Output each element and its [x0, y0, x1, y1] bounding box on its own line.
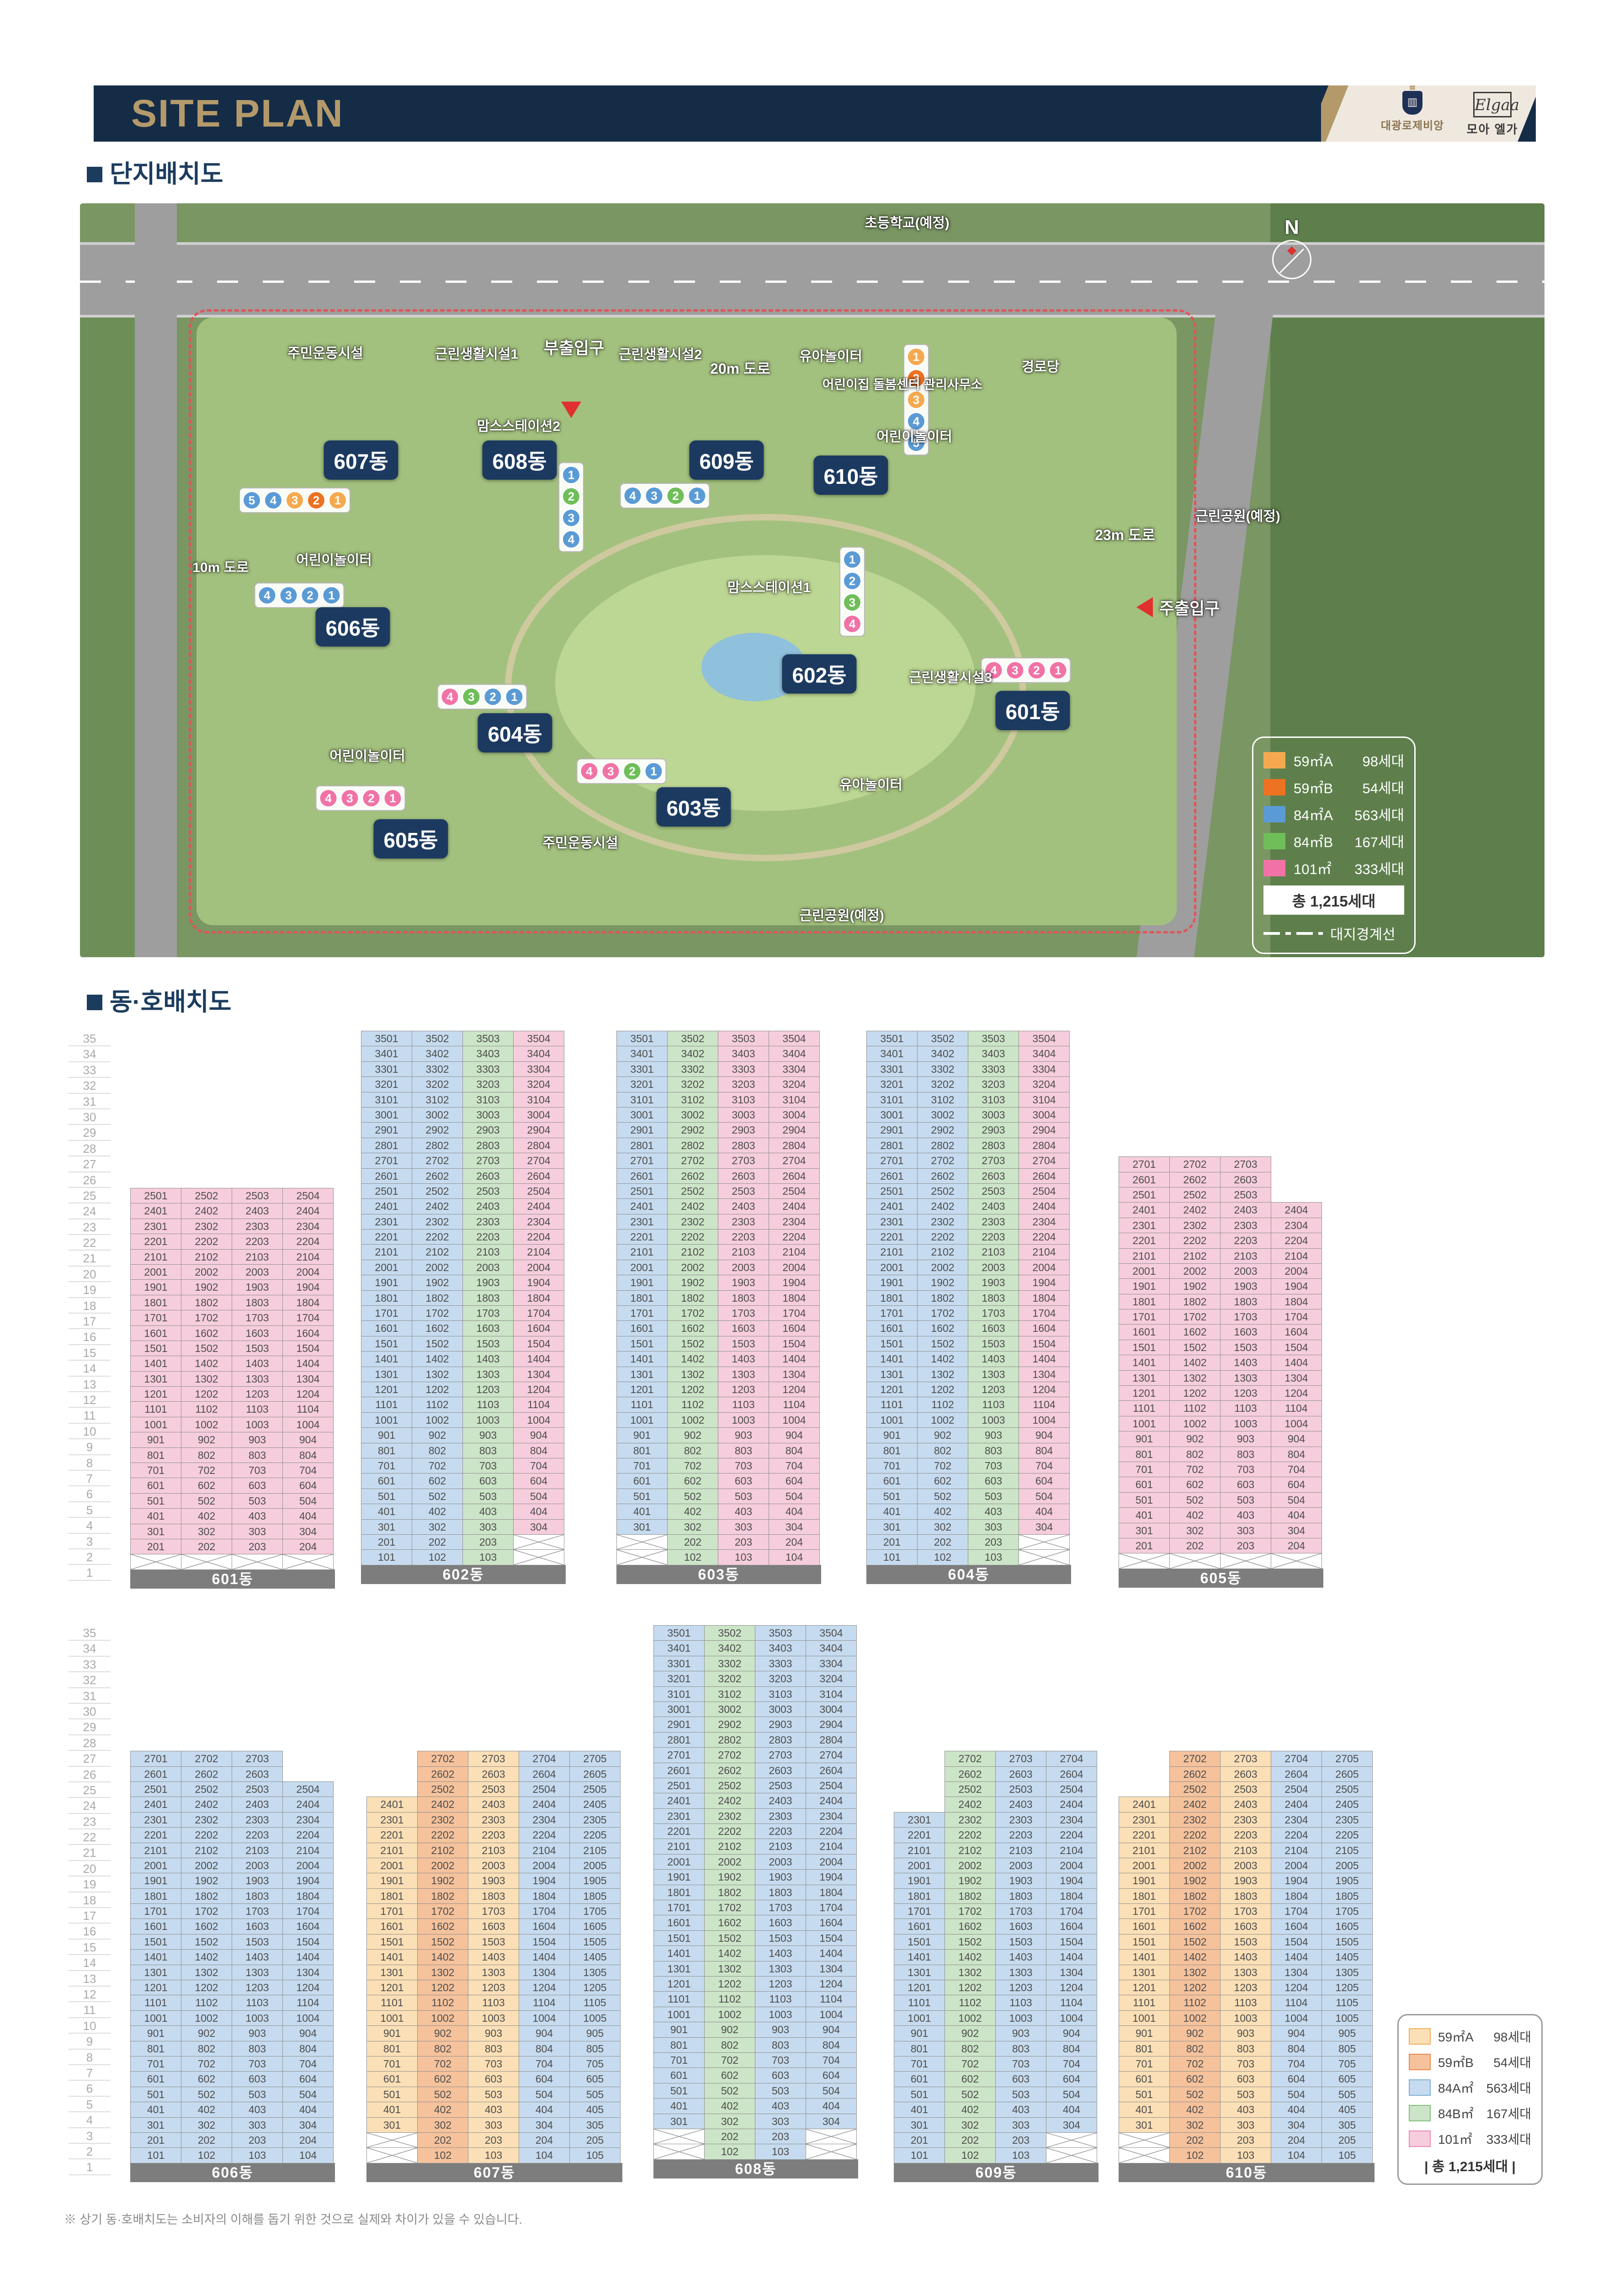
unit-cell: 1404	[282, 1356, 334, 1371]
unit-cell: 103	[995, 2147, 1046, 2163]
legend-total: | 총 1,215세대 |	[1409, 2155, 1531, 2175]
unit-cell: 2503	[232, 1781, 283, 1797]
unit-cell: 402	[181, 1508, 232, 1524]
building-grid-601: 2501250225032504240124022403240423012302…	[130, 1188, 335, 1589]
grid-floor-row: 3401340234033404	[616, 1046, 821, 1061]
building-wing-circle: 4	[562, 530, 581, 549]
unit-cell: 1805	[569, 1888, 621, 1904]
grid-floor-row: 801802803804	[653, 2037, 858, 2052]
grid-floor-row: 401402403404	[130, 2102, 335, 2117]
unit-cell: 1801	[1119, 1294, 1170, 1309]
unit-cell: 2505	[1321, 1781, 1373, 1797]
grid-floor-row: 1701170217031704	[894, 1903, 1099, 1919]
hatched-cell	[282, 1554, 334, 1569]
unit-cell: 2303	[468, 1812, 519, 1828]
unit-cell: 1604	[806, 1915, 857, 1930]
building-wing-circle: 2	[843, 572, 862, 591]
unit-cell: 1304	[1046, 1965, 1097, 1980]
unit-cell: 3502	[917, 1031, 968, 1046]
unit-cell: 3501	[616, 1031, 668, 1046]
grid-floor-row: 1701170217031704	[1119, 1309, 1323, 1324]
unit-cell: 903	[232, 2025, 283, 2041]
unit-cell: 2401	[1119, 1797, 1170, 1812]
grid-floor-row: 501502503504	[130, 1493, 335, 1508]
unit-cell: 1502	[945, 1934, 996, 1950]
unit-cell: 2803	[755, 1732, 806, 1748]
unit-cell: 2402	[417, 1797, 468, 1812]
unit-cell: 2101	[361, 1244, 412, 1260]
unit-cell: 2703	[995, 1751, 1046, 1766]
grid-floor-row: 1201120212031204	[1119, 1385, 1323, 1400]
floor-axis-label: 24	[69, 1203, 111, 1219]
grid-floor-row: 1801180218031804	[616, 1290, 821, 1305]
unit-cell: 904	[769, 1427, 820, 1443]
unit-cell: 703	[468, 2056, 519, 2072]
map-legend: 59㎡A98세대59㎡B54세대84㎡A563세대84㎡B167세대101㎡33…	[1252, 737, 1416, 954]
legend-count: 167세대	[1354, 831, 1404, 851]
unit-cell: 503	[232, 1493, 283, 1509]
unit-cell: 2002	[917, 1260, 968, 1275]
unit-cell: 2305	[569, 1812, 621, 1828]
unit-cell: 2702	[667, 1153, 718, 1168]
unit-cell: 1201	[1119, 1980, 1170, 1995]
unit-cell: 1004	[769, 1412, 820, 1428]
unit-cell: 702	[667, 1458, 718, 1473]
unit-cell: 1903	[968, 1275, 1019, 1290]
building-wing-circle: 2	[301, 586, 320, 605]
unit-cell: 401	[866, 1504, 918, 1519]
unit-cell: 502	[704, 2083, 755, 2099]
unit-cell: 1904	[806, 1869, 857, 1885]
unit-cell: 1503	[1220, 1934, 1271, 1950]
unit-cell: 201	[361, 1534, 412, 1550]
grid-floor-row: 1401140214031404	[616, 1351, 821, 1366]
unit-cell: 903	[755, 2022, 806, 2037]
unit-cell: 504	[806, 2083, 857, 2099]
grid-floor-row: 1901190219031904	[130, 1873, 335, 1888]
floor-axis-label: 5	[69, 1502, 111, 1518]
unit-cell: 903	[462, 1427, 514, 1443]
unit-cell: 1805	[1321, 1888, 1373, 1904]
unit-cell: 3101	[866, 1092, 918, 1108]
grid-floor-row: 2201220222032204	[653, 1823, 858, 1839]
unit-cell: 1403	[718, 1351, 769, 1367]
unit-cell: 502	[917, 1489, 968, 1504]
unit-cell: 2103	[462, 1244, 514, 1260]
unit-cell: 1301	[130, 1371, 181, 1387]
unit-cell: 1004	[1046, 2010, 1097, 2026]
unit-cell: 803	[232, 2041, 283, 2056]
unit-cell: 2403	[1220, 1797, 1271, 1812]
unit-cell: 3201	[616, 1076, 668, 1092]
unit-cell: 504	[1019, 1489, 1070, 1504]
unit-cell: 2102	[1169, 1843, 1221, 1858]
grid-floor-row: 18011802180318041805	[366, 1888, 622, 1903]
floor-axis-label: 7	[69, 2065, 111, 2081]
unit-cell: 3101	[653, 1686, 705, 1702]
floor-axis-label: 24	[69, 1798, 111, 1813]
unit-cell: 2603	[468, 1766, 519, 1782]
unit-cell: 2502	[667, 1183, 718, 1199]
unit-cell: 1302	[945, 1965, 996, 1980]
boundary-dash-icon	[1263, 932, 1323, 935]
unit-cell: 1701	[866, 1305, 918, 1321]
floor-axis-label: 10	[69, 1424, 111, 1439]
unit-cell: 1402	[1169, 1949, 1221, 1965]
unit-cell: 2302	[181, 1812, 232, 1828]
unit-cell: 103	[718, 1549, 769, 1565]
unit-cell: 1403	[1220, 1949, 1271, 1965]
legend-swatch-icon	[1409, 2079, 1431, 2096]
floor-axis-label: 1	[69, 2159, 111, 2175]
grid-floor-row: 3501350235033504	[616, 1031, 821, 1046]
unit-cell: 3202	[917, 1076, 968, 1092]
grid-floor-row: 1801180218031804	[361, 1290, 566, 1305]
unit-cell: 1401	[894, 1949, 945, 1965]
grid-floor-row: 2101210221032104	[361, 1244, 566, 1259]
unit-cell: 701	[1119, 1462, 1170, 1477]
unit-cell: 1104	[1019, 1397, 1070, 1412]
unit-cell: 1703	[995, 1903, 1046, 1919]
grid-floor-row: 501502503504	[653, 2083, 858, 2098]
unit-cell: 1004	[513, 1412, 564, 1428]
unit-cell: 804	[519, 2041, 570, 2056]
unit-cell: 103	[468, 2147, 519, 2163]
unit-cell: 804	[282, 2041, 334, 2056]
unit-cell: 1902	[917, 1275, 968, 1290]
unit-cell: 2405	[1321, 1797, 1373, 1812]
unit-cell: 601	[1119, 1477, 1170, 1492]
grid-floor-row: 1601160216031604	[616, 1320, 821, 1336]
unit-cell: 1302	[417, 1965, 468, 1980]
building-wing-circle: 2	[666, 486, 685, 505]
unit-cell: 1103	[755, 1991, 806, 2007]
unit-cell: 1803	[1220, 1888, 1271, 1904]
header-brand-area: 대광로제비앙 Elgaa 모아 엘가	[1321, 85, 1536, 142]
grid-floor-row: 1601160216031604	[1119, 1324, 1323, 1339]
unit-cell: 2002	[181, 1264, 232, 1280]
unit-cell: 102	[704, 2144, 755, 2159]
unit-cell: 201	[130, 2132, 181, 2148]
unit-cell: 2603	[462, 1168, 514, 1184]
grid-floor-row: 401402403404	[894, 2102, 1099, 2117]
unit-cell: 1901	[130, 1279, 181, 1295]
unit-cell: 1801	[894, 1888, 945, 1904]
grid-floor-row: 1401140214031404	[130, 1356, 335, 1371]
grid-floor-row: 2601260226032604	[616, 1168, 821, 1183]
unit-cell: 2501	[653, 1778, 705, 1793]
floor-axis-label: 35	[69, 1031, 111, 1046]
unit-cell: 1401	[1119, 1949, 1170, 1965]
unit-cell: 603	[468, 2071, 519, 2087]
unit-cell: 1602	[945, 1919, 996, 1934]
unit-cell: 1004	[282, 2010, 334, 2026]
grid-floor-row: 2401240224032404	[130, 1797, 335, 1812]
unit-cell: 1503	[232, 1341, 283, 1356]
grid-floor-row: 501502503504	[130, 2087, 335, 2102]
grid-floor-row: 501502503504	[1119, 1492, 1323, 1507]
unit-cell: 2704	[519, 1751, 570, 1766]
unit-cell: 303	[1220, 2117, 1271, 2133]
unit-cell: 1502	[181, 1341, 232, 1356]
unit-cell: 604	[513, 1473, 564, 1489]
unit-cell: 2403	[968, 1198, 1019, 1214]
unit-cell: 1301	[653, 1961, 705, 1977]
grid-floor-row: 1801180218031804	[130, 1888, 335, 1903]
unit-cell: 1101	[366, 1995, 418, 2010]
floor-axis-label: 26	[69, 1172, 111, 1188]
unit-cell: 3204	[1019, 1076, 1070, 1092]
unit-cell: 904	[513, 1427, 564, 1443]
unit-cell: 3404	[1019, 1046, 1070, 1061]
unit-cell: 402	[917, 1504, 968, 1519]
building-wing-circle: 3	[562, 509, 581, 528]
unit-cell: 602	[704, 2067, 755, 2083]
unit-cell: 2501	[866, 1183, 918, 1199]
unit-cell: 305	[569, 2117, 621, 2133]
grid-floor-row: 901902903904	[361, 1427, 566, 1442]
grid-floor-row: 2001200220032004	[130, 1264, 335, 1279]
unit-cell: 2605	[569, 1766, 621, 1782]
legend-boundary: 대지경계선	[1263, 923, 1404, 943]
unit-cell: 1502	[412, 1336, 463, 1351]
unit-cell: 2301	[616, 1214, 668, 1230]
unit-cell: 2903	[755, 1717, 806, 1732]
grid-floor-row: 2701270227032704	[653, 1747, 858, 1762]
unit-cell: 103	[1220, 2147, 1271, 2163]
unit-cell: 1103	[1220, 1400, 1271, 1416]
building-wing-circle: 1	[907, 347, 926, 366]
unit-cell: 503	[462, 1489, 514, 1504]
unit-cell: 1202	[667, 1382, 718, 1397]
unit-cell: 2901	[866, 1122, 918, 1138]
grid-floor-row: 2101210221032104	[616, 1244, 821, 1259]
building-wing-circle: 3	[340, 789, 360, 808]
map-building-wings: 1234	[839, 547, 865, 637]
grid-floor-row: 1901190219031904	[616, 1275, 821, 1290]
unit-cell: 402	[181, 2102, 232, 2117]
unit-cell: 2502	[945, 1781, 996, 1797]
unit-cell: 3103	[755, 1686, 806, 1702]
unit-cell: 1703	[468, 1903, 519, 1919]
unit-cell: 2004	[282, 1858, 334, 1873]
unit-cell: 1202	[1169, 1980, 1221, 1995]
unit-cell: 1901	[361, 1275, 412, 1290]
unit-cell: 1702	[1169, 1903, 1221, 1919]
grid-floor-row: 701702703704	[894, 2056, 1099, 2071]
unit-cell: 3401	[866, 1046, 918, 1061]
unit-cell: 2303	[995, 1812, 1046, 1828]
unit-cell: 3502	[412, 1031, 463, 1046]
unit-cell: 1601	[1119, 1919, 1170, 1934]
unit-cell: 2002	[1169, 1263, 1221, 1279]
building-grid-602: 3501350235033504340134023403340433013302…	[361, 1031, 566, 1584]
unit-cell: 203	[232, 2132, 283, 2148]
unit-cell: 1902	[412, 1275, 463, 1290]
unit-cell: 704	[806, 2052, 857, 2068]
unit-cell: 701	[361, 1458, 412, 1473]
floor-axis-label: 25	[69, 1188, 111, 1203]
unit-cell: 1901	[130, 1873, 181, 1888]
unit-cell: 101	[361, 1549, 412, 1565]
unit-cell: 1304	[282, 1965, 334, 1980]
unit-cell: 1305	[569, 1965, 621, 1980]
unit-cell: 603	[755, 2067, 806, 2083]
building-name-bar: 601동	[130, 1569, 335, 1589]
map-building-badge: 604동	[478, 713, 552, 753]
unit-cell: 2104	[806, 1839, 857, 1854]
unit-cell: 502	[1169, 2087, 1221, 2102]
unit-cell: 3501	[866, 1031, 918, 1046]
grid-floor-row: 2201220222032204	[130, 1827, 335, 1842]
floor-axis-label: 1	[69, 1565, 111, 1580]
unit-cell: 301	[130, 2117, 181, 2133]
building-wing-circle: 1	[383, 789, 403, 808]
unit-cell: 2703	[232, 1751, 283, 1766]
grid-floor-row: 19011902190319041905	[1119, 1873, 1375, 1888]
unit-cell: 2401	[366, 1797, 418, 1812]
unit-cell: 1205	[569, 1980, 621, 1995]
unit-cell: 101	[894, 2147, 945, 2163]
floor-axis-label: 33	[69, 1062, 111, 1078]
grid-floor-row: 202203	[653, 2129, 858, 2144]
unit-cell: 1403	[968, 1351, 1019, 1367]
floor-axis-label: 14	[69, 1955, 111, 1971]
unit-cell: 2804	[769, 1138, 820, 1153]
unit-cell: 1404	[769, 1351, 820, 1367]
building-wing-circle: 4	[580, 762, 599, 781]
unit-cell: 303	[718, 1519, 769, 1535]
grid-floor-row: 1601160216031604	[894, 1919, 1099, 1934]
unit-cell: 1903	[755, 1869, 806, 1885]
unit-cell: 1904	[519, 1873, 570, 1888]
header-band: SITE PLAN 대광로제비앙 Elgaa 모아 엘가	[94, 85, 1536, 142]
building-wing-circle: 2	[562, 487, 581, 506]
unit-cell: 2101	[866, 1244, 918, 1260]
unit-cell: 1601	[366, 1919, 418, 1934]
unit-cell: 1202	[1169, 1385, 1221, 1401]
unit-cell: 1701	[130, 1903, 181, 1919]
map-facility-label: 경로당	[1022, 355, 1060, 376]
unit-cell: 3402	[667, 1046, 718, 1061]
unit-cell: 201	[1119, 1538, 1170, 1553]
unit-cell: 1103	[232, 1401, 283, 1417]
unit-cell: 2704	[1271, 1751, 1322, 1766]
unit-cell: 2103	[995, 1843, 1046, 1858]
unit-cell: 2203	[968, 1229, 1019, 1245]
building-wing-circle: 1	[1049, 661, 1068, 680]
unit-cell: 2604	[513, 1168, 564, 1184]
floor-axis-label: 27	[69, 1751, 111, 1766]
unit-cell: 2702	[945, 1751, 996, 1766]
unit-cell: 2004	[1271, 1263, 1322, 1279]
unit-cell: 1801	[366, 1888, 418, 1904]
unit-cell: 404	[1046, 2102, 1097, 2117]
grid-floor-row: 3101310231033104	[866, 1092, 1071, 1107]
unit-cell: 602	[412, 1473, 463, 1489]
grid-floor-row	[1119, 1553, 1323, 1568]
unit-cell: 602	[667, 1473, 718, 1489]
grid-floor-row: 1501150215031504	[130, 1341, 335, 1356]
unit-cell: 304	[513, 1519, 564, 1535]
grid-floor-row: 2501250225032504	[866, 1183, 1071, 1198]
unit-cell: 1201	[366, 1980, 418, 1995]
unit-cell: 804	[1046, 2041, 1097, 2056]
unit-cell: 1804	[769, 1290, 820, 1306]
legend-swatch-icon	[1409, 2105, 1431, 2121]
grid-floor-row: 2901290229032904	[866, 1122, 1071, 1137]
unit-cell: 1301	[1119, 1370, 1170, 1386]
unit-cell: 2004	[513, 1260, 564, 1275]
unit-cell: 2401	[1119, 1202, 1170, 1218]
unit-cell: 1402	[1169, 1355, 1221, 1370]
unit-cell: 2401	[616, 1198, 668, 1214]
unit-cell: 1503	[1220, 1340, 1271, 1355]
unit-cell: 704	[1271, 1462, 1322, 1477]
unit-cell: 2303	[232, 1219, 283, 1234]
unit-cell: 2502	[412, 1183, 463, 1199]
grid-floor-row: 21012102210321042105	[366, 1843, 622, 1858]
unit-cell: 1003	[1220, 2010, 1271, 2026]
grid-floor-row: 1701170217031704	[866, 1305, 1071, 1320]
unit-cell: 2304	[1271, 1812, 1322, 1828]
unit-cell: 3502	[667, 1031, 718, 1046]
floor-axis-label: 2	[69, 2144, 111, 2159]
unit-cell: 2205	[569, 1827, 621, 1843]
unit-cell: 1503	[968, 1336, 1019, 1351]
grid-floor-row: 401402403404	[616, 1504, 821, 1519]
unit-cell: 1005	[1321, 2010, 1373, 2026]
grid-floor-row: 3101310231033104	[653, 1686, 858, 1701]
unit-cell: 901	[1119, 2025, 1170, 2041]
unit-cell: 2003	[468, 1858, 519, 1873]
unit-cell: 1804	[1271, 1888, 1322, 1904]
unit-cell: 3201	[866, 1076, 918, 1092]
grid-floor-row: 102103104105	[1119, 2147, 1375, 2162]
unit-cell: 1902	[181, 1279, 232, 1295]
unit-cell: 701	[1119, 2056, 1170, 2072]
unit-cell: 2501	[1119, 1187, 1170, 1203]
floor-axis-label: 6	[69, 2081, 111, 2096]
unit-cell: 1702	[667, 1305, 718, 1321]
unit-cell: 2004	[769, 1260, 820, 1275]
unit-cell: 703	[718, 1458, 769, 1473]
unit-cell: 2104	[513, 1244, 564, 1260]
unit-cell: 901	[866, 1427, 918, 1443]
unit-cell: 2802	[704, 1732, 755, 1748]
unit-cell: 3403	[718, 1046, 769, 1061]
unit-cell: 302	[1169, 1523, 1221, 1538]
grid-floor-row: 10011002100310041005	[1119, 2010, 1375, 2025]
unit-cell: 1003	[1220, 1416, 1271, 1431]
unit-cell: 401	[653, 2098, 705, 2114]
unit-cell: 1204	[519, 1980, 570, 1995]
hatched-cell	[1046, 2147, 1097, 2163]
unit-cell: 2902	[412, 1122, 463, 1138]
unit-cell: 2003	[1220, 1858, 1271, 1873]
unit-cell: 2201	[894, 1827, 945, 1843]
unit-cell: 702	[181, 2056, 232, 2072]
unit-cell: 802	[412, 1443, 463, 1458]
unit-cell: 902	[667, 1427, 718, 1443]
unit-cell: 1903	[995, 1873, 1046, 1888]
floor-axis-label: 27	[69, 1156, 111, 1172]
unit-cell: 1304	[1019, 1367, 1070, 1382]
unit-cell: 1902	[417, 1873, 468, 1888]
unit-cell: 1904	[1046, 1873, 1097, 1888]
unit-cell: 1504	[1019, 1336, 1070, 1351]
unit-cell: 2003	[968, 1260, 1019, 1275]
